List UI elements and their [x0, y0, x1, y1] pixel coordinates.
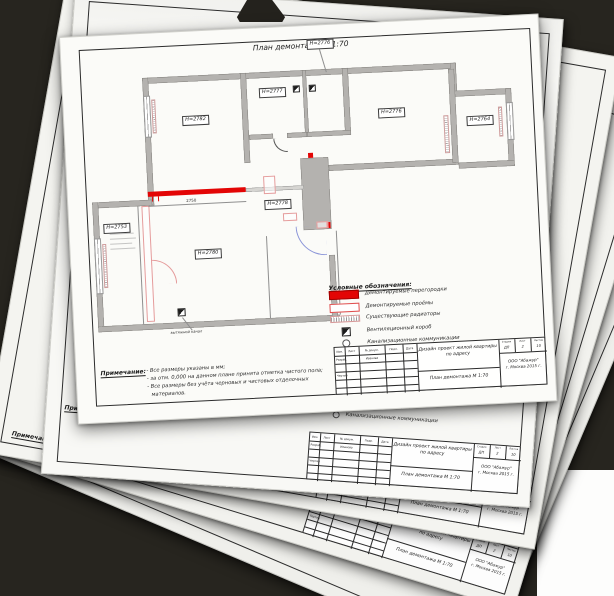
stamp-drawn-label: Чертил	[336, 373, 360, 378]
room-label: Н=2777	[259, 87, 286, 98]
room-label: Н=2782	[182, 115, 209, 126]
stamp-col-rev: Изм.	[335, 349, 345, 353]
vent-duct-icon	[309, 85, 316, 92]
stamp-stage-label: Стадия	[498, 340, 514, 344]
room-label: Н=2778	[264, 199, 291, 210]
demolished-opening	[263, 176, 276, 195]
stamp-doc-name: План демонтажа М 1:70	[419, 373, 499, 382]
stamp-sheet-value: 2	[515, 344, 531, 349]
demolition-tick	[158, 196, 159, 201]
stamp-author-label: Разраб.	[309, 442, 333, 448]
stamp-drawn-label: Чертил	[308, 458, 332, 464]
stamp-col-doc: № докум.	[334, 436, 360, 442]
legend-item-label: Демонтируемые проёмы	[365, 300, 433, 310]
stamp-col-rev: Изм.	[310, 435, 320, 440]
stamp-sheet-label: Лист	[514, 339, 530, 343]
stamp-org-city: г. Москва 2015 г.	[501, 363, 547, 372]
radiator-icon	[330, 315, 360, 323]
stamp-sheets-label: Листов	[530, 339, 546, 343]
vent-duct-icon	[293, 85, 300, 92]
stamp-org: ООО "Абажур" г. Москва 2015 г.	[500, 357, 547, 372]
stamp-sheets-value: 10	[505, 452, 521, 457]
stamp-author-name: Иванова	[333, 444, 359, 450]
room-label: Н=2764	[466, 115, 493, 126]
stamp-col-sheet: Лист	[345, 349, 359, 354]
stamp-stage-label: Стадия	[474, 445, 490, 449]
stamp-col-sign: Подп.	[360, 438, 378, 443]
stamp-sheets-label: Листов	[506, 447, 522, 451]
room-label-leader: Н=2776	[306, 39, 333, 50]
stamp-gridline	[418, 367, 500, 372]
stamp-col-sign: Подп.	[385, 347, 403, 352]
stamp-gridline	[308, 472, 390, 478]
demolished-opening	[283, 213, 297, 222]
demolished-partition	[308, 153, 313, 158]
stamp-col-sheet: Лист	[320, 435, 334, 440]
stamp-gridline	[309, 448, 391, 454]
stamp-gridline	[336, 384, 418, 389]
stamp-project-title: Дизайн проект жилой квартиры по адресу	[392, 442, 473, 459]
legend-swatch-box	[330, 315, 360, 323]
demolition-tick	[152, 197, 153, 202]
room-label: Н=2776	[378, 107, 405, 118]
stamp-col-doc: № докум.	[359, 347, 385, 352]
stamp-doc-name: План демонтажа М 1:70	[391, 471, 471, 482]
stamp-sheet-value: 2	[489, 451, 505, 456]
stamp-org: ООО "Абажур" г. Москва 2015 г.	[473, 463, 520, 479]
stamp-project-title: Дизайн проект жилой квартиры по адресу	[418, 344, 498, 360]
stamp-author-label: Разраб.	[335, 357, 359, 362]
stamp-col-date: Дата	[403, 346, 417, 351]
stamp-stage-value: ДП	[473, 450, 489, 455]
title-block: Изм. Лист № докум. Подп. Дата Разраб. Ив…	[333, 337, 547, 395]
photo-of-drawing-stack: Изм. Лист № докум. Подп. Дата Разраб. Ив…	[0, 0, 614, 596]
wall-pylon	[300, 157, 331, 230]
legend: Условные обозначения: Демонтируемые пере…	[328, 271, 412, 294]
stamp-col-date: Дата	[378, 439, 392, 444]
vent-duct-icon	[177, 308, 185, 316]
demolished-opening-icon	[329, 303, 359, 313]
legend-swatch-box	[329, 303, 359, 313]
sheet-1-demolition-plan: План демонтажа М 1:70	[59, 14, 557, 425]
vent-duct-icon	[341, 327, 350, 336]
legend-item-label: Вентиляционный короб	[367, 325, 432, 334]
stamp-gridline	[473, 457, 521, 461]
stamp-sheet-label: Лист	[490, 446, 506, 450]
stamp-gridline	[390, 465, 472, 471]
room-label: Н=2780	[195, 248, 222, 259]
demolished-partition-icon	[329, 290, 359, 300]
stamp-gridline	[499, 351, 547, 354]
room-label: Н=2753	[103, 223, 130, 234]
stamp-gridline	[308, 464, 390, 470]
dimension-value: 2750	[186, 197, 196, 202]
stamp-gridline	[336, 368, 418, 373]
wall-segment	[287, 132, 307, 138]
legend-swatch-box	[331, 327, 361, 337]
stamp-author-name: Иванова	[359, 355, 385, 360]
stamp-sheets-value: 10	[531, 344, 547, 349]
stamp-stage-value: ДП	[499, 345, 515, 350]
legend-swatch-box	[329, 290, 359, 300]
sewer-icon	[332, 411, 339, 418]
stamp-org: ООО "Абажур" г. Москва 2015 г.	[465, 555, 513, 581]
